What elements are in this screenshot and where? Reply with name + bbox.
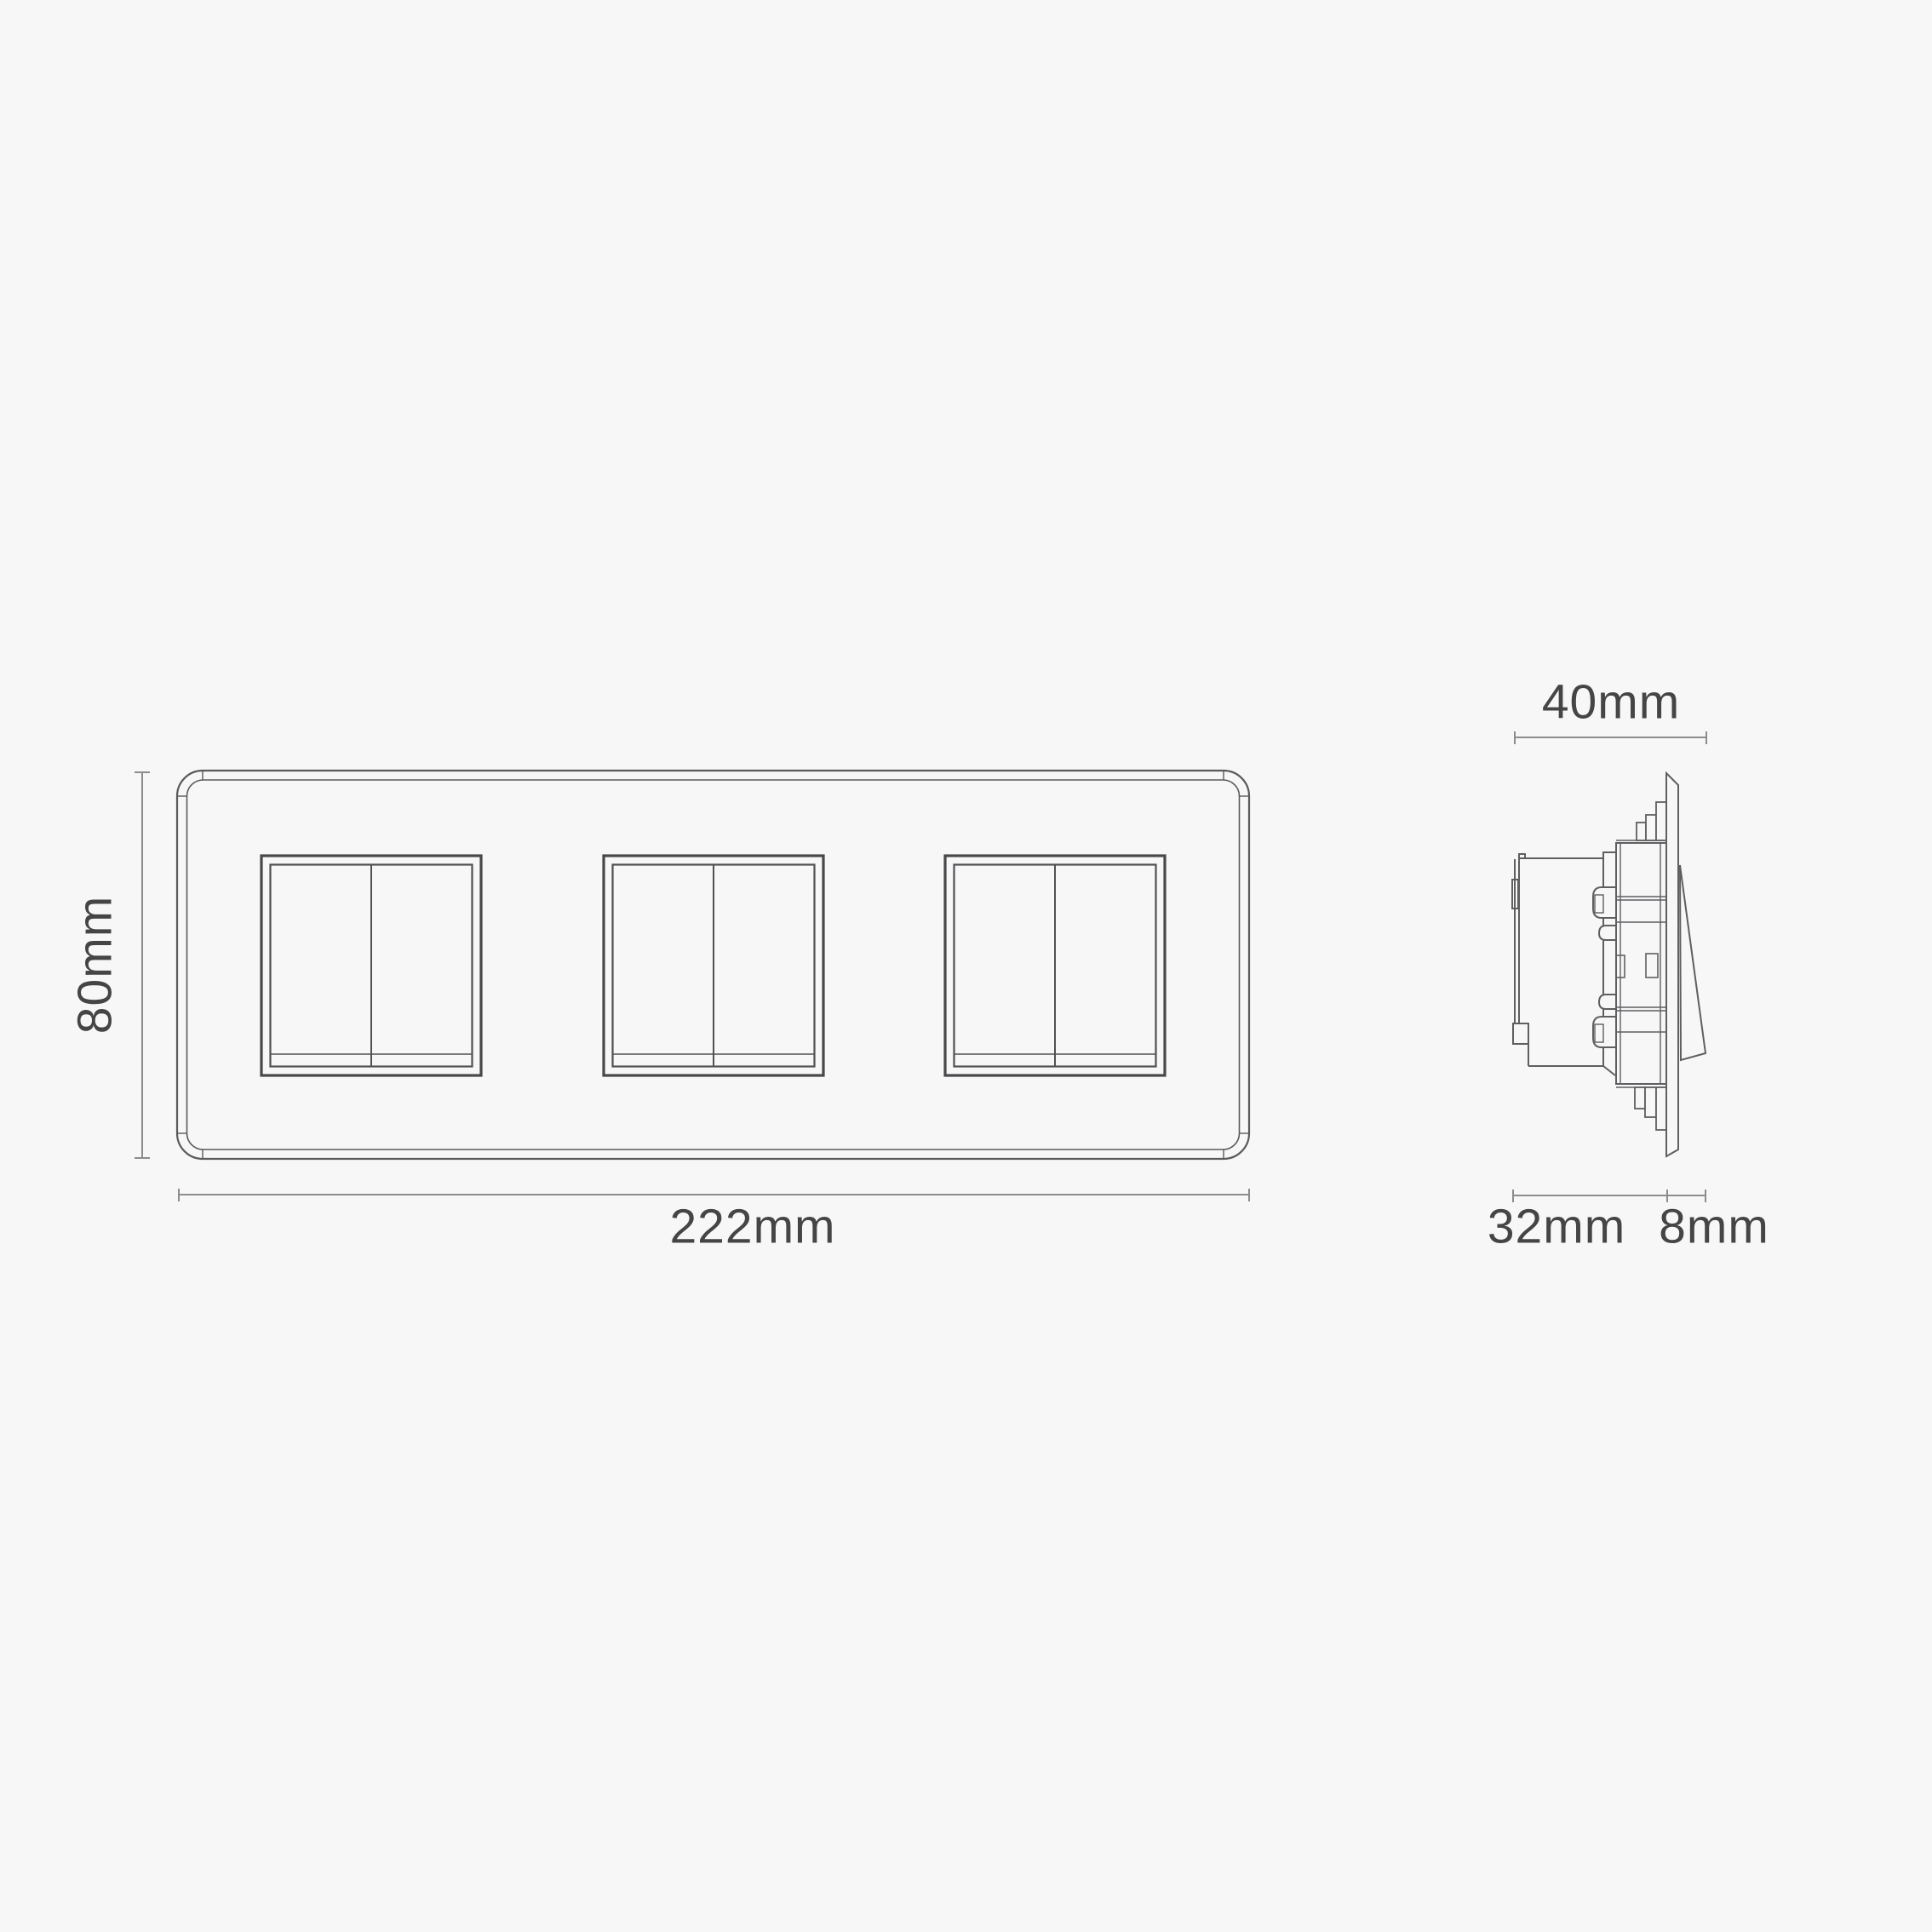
box-bottom-wedge	[1603, 1066, 1615, 1075]
protrusion-depth-label: 8mm	[1659, 1203, 1769, 1252]
depth-dimension-line	[1515, 731, 1706, 744]
switch-module-1	[261, 856, 481, 1075]
switch-module-3	[945, 856, 1165, 1075]
technical-drawing-svg	[0, 0, 1932, 1932]
overall-depth-label: 40mm	[1542, 679, 1680, 727]
mechanism-frame	[1616, 840, 1666, 1087]
box-top-step	[1603, 852, 1616, 858]
front-view	[177, 771, 1249, 1159]
width-dimension-label: 222mm	[669, 1203, 835, 1252]
faceplate-side-profile	[1666, 773, 1678, 1156]
retaining-clips	[1593, 887, 1616, 1047]
side-view	[1512, 773, 1706, 1156]
rocker-side-profile	[1680, 865, 1706, 1060]
switch-module-2	[604, 856, 823, 1075]
height-dimension-line	[135, 772, 150, 1158]
box-foot	[1513, 1023, 1528, 1044]
recessed-depth-label: 32mm	[1488, 1203, 1625, 1252]
dimension-lines	[135, 731, 1706, 1202]
height-dimension-label: 80mm	[72, 896, 120, 1034]
dimension-drawing-page: 80mm 222mm 40mm 32mm 8mm	[0, 0, 1932, 1932]
